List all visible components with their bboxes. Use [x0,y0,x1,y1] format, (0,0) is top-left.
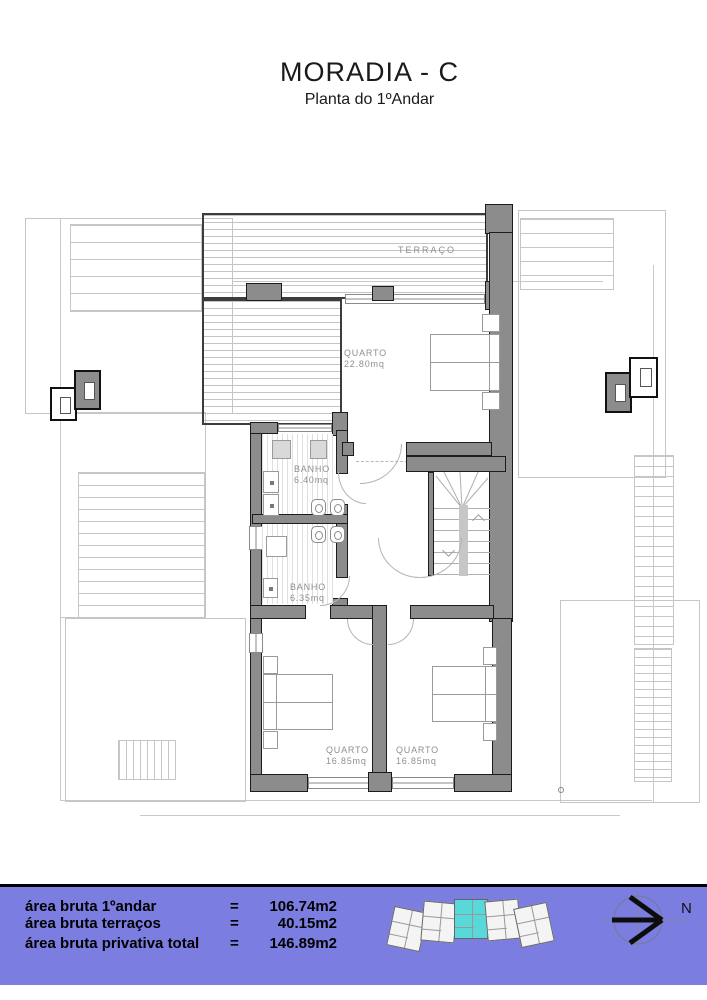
sink-drain [269,587,273,591]
wall-bottom [368,772,392,792]
bed [430,334,500,391]
toilet-bowl [315,504,323,513]
wall-banho-top [250,422,278,434]
room-area: 6.40mq [294,475,330,486]
room-label-quarto3: QUARTO 16.85mq [396,745,439,767]
bidet-icon [330,499,345,516]
area-label: área bruta terraços [25,915,230,932]
area-summary: área bruta 1ºandar = 106.74m2 área bruta… [25,898,337,952]
neighbor-hatch [634,455,674,645]
wall-left [250,422,262,780]
bidet-bowl [334,504,342,513]
wall-master-bottom [406,442,492,456]
bed-line [489,335,490,390]
room-label-quarto-principal: QUARTO 22.80mq [344,348,387,370]
window-bottom [392,777,454,789]
wall-door-stub [342,442,354,456]
door-arc-master [360,444,402,484]
minimap-unit [513,902,555,948]
wall-stairs-top [406,456,506,472]
equals-sign: = [230,935,252,952]
window-left [249,526,263,550]
bed-line [433,694,496,695]
chimney-flue [60,397,71,414]
page: MORADIA - C Planta do 1ºAndar TERRAÇO [0,0,707,1000]
room-label-quarto2: QUARTO 16.85mq [326,745,369,767]
wall-hall-south [250,605,306,619]
bidet-bowl [334,531,342,540]
chimney-right-dark [605,372,632,413]
survey-marker [558,787,564,793]
sink-drain [270,481,274,485]
minimap-unit-highlighted [454,899,488,939]
chimney-flue [640,368,652,387]
equals-sign: = [230,915,252,932]
bed-line [264,702,332,703]
chimney-flue [84,382,95,400]
terrace-area [202,213,488,299]
bidet-icon [330,526,345,543]
area-row: área bruta 1ºandar = 106.74m2 [25,898,337,915]
bed [432,666,497,722]
floor-plan: TERRAÇO [0,0,707,880]
room-label-banho2: BANHO 6.35mq [290,582,326,604]
terrace-strip [202,299,342,425]
pillow [482,392,500,410]
neighbor-line [140,815,620,816]
bed-line [485,667,486,721]
wall-pillar [246,283,282,301]
room-area: 6.35mq [290,593,326,604]
area-value: 106.74m2 [252,898,337,915]
wall-bedroom-divider [372,605,387,777]
wall-bottom [250,774,308,792]
wall-pillar [485,204,513,234]
room-name: QUARTO [326,745,369,756]
neighbor-hatch [78,472,205,618]
neighbor-hatch [70,224,202,312]
door-arc-quarto3 [388,619,414,645]
neighbor-line [653,265,654,802]
room-name: BANHO [290,582,326,593]
minimap-unit [420,901,457,944]
window-banho [278,424,332,432]
area-value: 40.15m2 [252,915,337,932]
pillow [483,647,497,665]
area-label: área bruta privativa total [25,935,230,952]
room-label-banho1: BANHO 6.40mq [294,464,330,486]
room-area: 22.80mq [344,359,387,370]
sink-icon [263,471,279,493]
sink-icon [263,494,279,516]
shower-tray-icon [266,536,287,557]
door-arc-quarto2 [347,619,373,645]
pillow [483,723,497,741]
room-name: QUARTO [344,348,387,359]
wall-pillar [372,286,394,301]
shower-icon [310,440,327,459]
neighbor-line [60,800,652,801]
shower-icon [272,440,291,459]
area-row: área bruta privativa total = 146.89m2 [25,935,337,952]
wall-hall-south [410,605,494,619]
neighbor-outline [560,600,700,803]
terrace-window [345,294,485,304]
pillow [263,656,278,674]
bed-line [276,675,277,729]
toilet-icon [311,526,326,543]
site-minimap [388,895,558,955]
toilet-icon [311,499,326,516]
room-label-terraco: TERRAÇO [398,245,456,256]
chimney-right [629,357,658,398]
room-area: 16.85mq [396,756,439,767]
area-value: 146.89m2 [252,935,337,952]
north-label: N [681,900,692,917]
room-name: BANHO [294,464,330,475]
chimney-left-dark [74,370,101,410]
bed [263,674,333,730]
room-name: TERRAÇO [398,245,456,255]
party-wall-right [489,232,513,622]
area-row: área bruta terraços = 40.15m2 [25,915,337,932]
room-area: 16.85mq [326,756,369,767]
sink-drain [270,504,274,508]
area-label: área bruta 1ºandar [25,898,230,915]
neighbor-stair [118,740,176,780]
chimney-left [50,387,77,421]
footer-bar: área bruta 1ºandar = 106.74m2 área bruta… [0,884,707,985]
chimney-flue [615,384,626,402]
north-compass-icon [600,887,704,953]
pillow [263,731,278,749]
pillow [482,314,500,332]
neighbor-outline [518,210,666,478]
wall-hall-south [330,605,376,619]
sink-icon [263,578,278,598]
wall-bottom [454,774,512,792]
equals-sign: = [230,898,252,915]
window-left [249,633,263,653]
room-name: QUARTO [396,745,439,756]
toilet-bowl [315,531,323,540]
door-arc-hall [378,538,420,578]
neighbor-line [60,218,61,800]
